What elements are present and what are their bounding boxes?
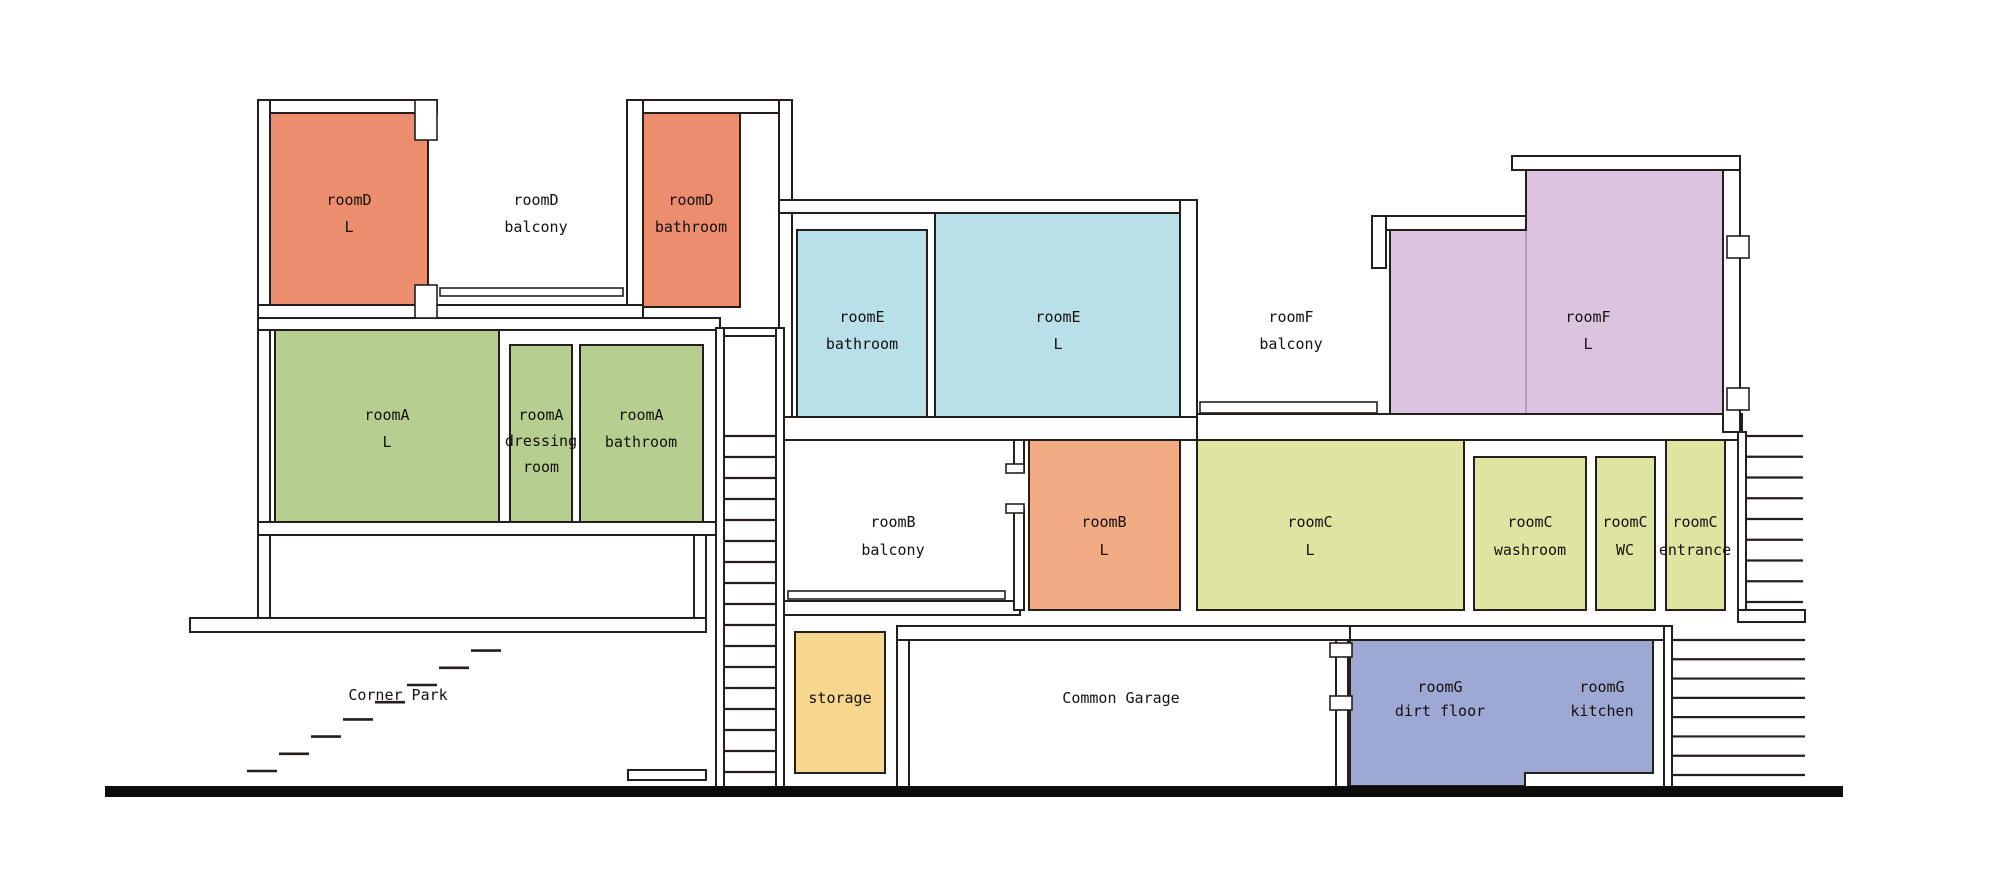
- roomA-dressing-label: room: [523, 458, 559, 476]
- roomB-balcony-label: roomB: [870, 513, 915, 531]
- roomG-kitchen-label: roomG: [1579, 678, 1624, 696]
- roomD-balcony-label: balcony: [504, 218, 567, 236]
- roomE-bathroom-label: bathroom: [826, 335, 898, 353]
- wall-segment: [258, 522, 720, 535]
- wall-segment: [694, 535, 706, 620]
- wall-segment: [258, 318, 720, 330]
- common-garage-label: Common Garage: [1062, 689, 1179, 707]
- wall-segment: [1512, 156, 1740, 170]
- roomE-bathroom-label: roomE: [839, 308, 884, 326]
- stair-shaft-left-wall: [716, 328, 724, 788]
- stair-shaft-right-wall: [776, 328, 784, 788]
- roomE-L-label: L: [1053, 335, 1062, 353]
- roomA-bathroom-label: bathroom: [605, 433, 677, 451]
- floor-plan: roomDLroomDbalconyroomDbathroomroomEbath…: [0, 0, 2000, 876]
- roomA-L-label: roomA: [364, 406, 409, 424]
- roomF-L-label: roomF: [1565, 308, 1610, 326]
- wall-segment: [779, 200, 1197, 213]
- roomD-L-label: roomD: [326, 191, 371, 209]
- roomC-L-label: L: [1305, 541, 1314, 559]
- wall-segment: [1336, 640, 1348, 788]
- roomC-washroom-label: washroom: [1494, 541, 1566, 559]
- roomF-L-label: L: [1583, 335, 1592, 353]
- wall-segment: [779, 417, 1197, 440]
- corner-park-label: Corner Park: [348, 686, 447, 704]
- roomF-balcony-railing: [1200, 402, 1377, 413]
- roomB-balcony-label: balcony: [861, 541, 924, 559]
- wall-segment: [1180, 200, 1197, 432]
- roomG-dirt-floor-label: roomG: [1417, 678, 1462, 696]
- wall-notch: [1727, 388, 1749, 410]
- roomC-entrance-label: roomC: [1672, 513, 1717, 531]
- wall-notch: [1330, 696, 1352, 710]
- roomG-dirt-floor-label: dirt floor: [1395, 702, 1485, 720]
- wall-notch: [1727, 236, 1749, 258]
- room-roomC-washroom: [1474, 457, 1586, 610]
- roomD-balcony-railing: [440, 288, 623, 296]
- room-roomD-L: [270, 113, 428, 307]
- roomA-L-label: L: [382, 433, 391, 451]
- wall-segment: [1738, 432, 1746, 610]
- wall-segment: [897, 626, 1350, 640]
- wall-segment: [628, 770, 706, 780]
- floor-plan-svg: roomDLroomDbalconyroomDbathroomroomEbath…: [0, 0, 2000, 876]
- roomD-bathroom-label: roomD: [668, 191, 713, 209]
- room-roomA-L: [275, 329, 499, 522]
- wall-segment: [258, 305, 643, 318]
- wall-notch: [1330, 643, 1352, 657]
- roomD-L-label: L: [344, 218, 353, 236]
- wall-notch: [415, 100, 437, 140]
- roomC-WC-label: roomC: [1602, 513, 1647, 531]
- stair-shaft-cap: [716, 328, 784, 336]
- wall-notch: [415, 285, 437, 318]
- roomE-L-label: roomE: [1035, 308, 1080, 326]
- roomB-balcony-railing: [788, 591, 1005, 599]
- wall-segment: [258, 100, 270, 632]
- roomC-washroom-label: roomC: [1507, 513, 1552, 531]
- wall-segment: [1372, 216, 1526, 230]
- wall-segment: [1014, 508, 1024, 610]
- wall-segment: [258, 100, 437, 113]
- wall-segment: [1738, 610, 1805, 622]
- roomF-balcony-label: balcony: [1259, 335, 1322, 353]
- wall-segment: [1372, 216, 1386, 268]
- roomC-WC-label: WC: [1616, 541, 1634, 559]
- wall-segment: [627, 100, 643, 318]
- roomD-bathroom-label: bathroom: [655, 218, 727, 236]
- room-roomD-bathroom: [643, 113, 740, 307]
- wall-notch: [1006, 504, 1024, 513]
- roomA-dressing-label: roomA: [518, 406, 563, 424]
- roomC-entrance-label: entrance: [1659, 541, 1731, 559]
- wall-segment: [1197, 414, 1742, 440]
- storage-label: storage: [808, 689, 871, 707]
- wall-segment: [190, 618, 706, 632]
- roomG-kitchen-label: kitchen: [1570, 702, 1633, 720]
- roomB-L-label: L: [1099, 541, 1108, 559]
- wall-segment: [1350, 626, 1668, 640]
- room-roomC-WC: [1596, 457, 1655, 610]
- roomB-L-label: roomB: [1081, 513, 1126, 531]
- wall-segment: [897, 640, 909, 788]
- wall-segment: [627, 100, 792, 113]
- roomC-L-label: roomC: [1287, 513, 1332, 531]
- wall-segment: [779, 601, 1020, 615]
- wall-notch: [1006, 464, 1024, 473]
- ground-line: [105, 786, 1843, 797]
- roomD-balcony-label: roomD: [513, 191, 558, 209]
- roomA-bathroom-label: roomA: [618, 406, 663, 424]
- room-roomF-L: [1390, 170, 1723, 417]
- roomA-dressing-label: dressing: [505, 432, 577, 450]
- wall-segment: [1664, 626, 1672, 788]
- roomF-balcony-label: roomF: [1268, 308, 1313, 326]
